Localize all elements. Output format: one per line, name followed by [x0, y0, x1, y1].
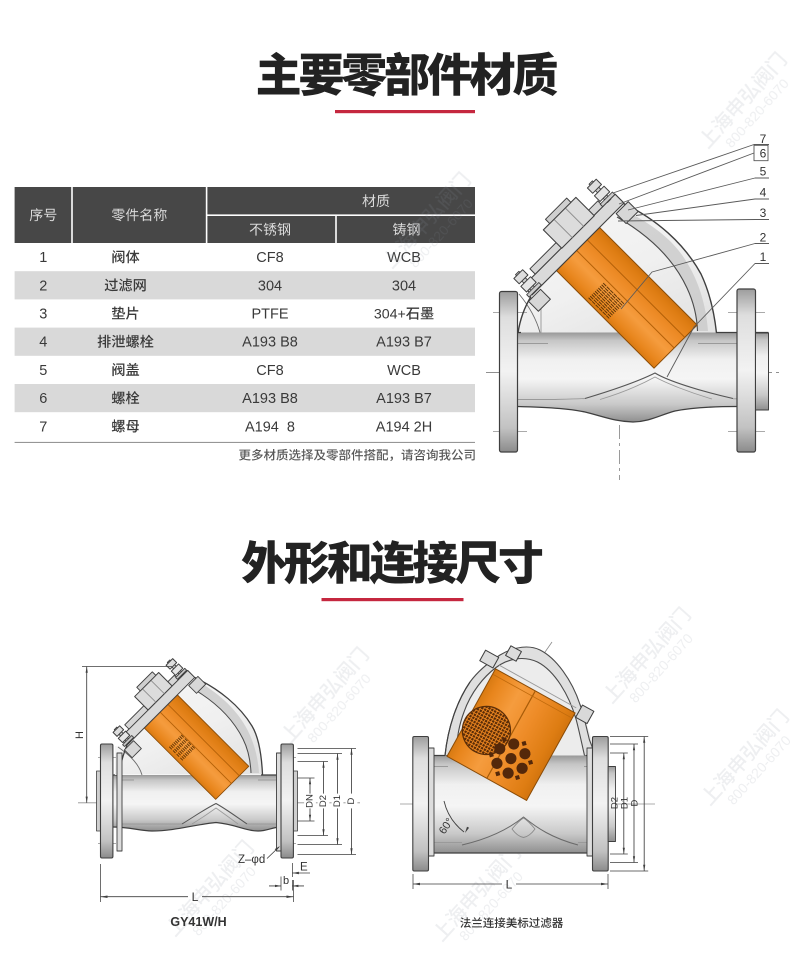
svg-text:6: 6: [39, 391, 47, 407]
svg-text:A193 B8: A193 B8: [242, 335, 298, 351]
svg-text:DN: DN: [305, 794, 316, 808]
svg-text:L: L: [192, 890, 199, 904]
svg-text:4: 4: [760, 186, 767, 200]
svg-text:D2: D2: [318, 795, 329, 807]
svg-text:7: 7: [760, 132, 767, 146]
svg-text:1: 1: [39, 250, 47, 266]
svg-text:b: b: [283, 875, 289, 887]
svg-text:L: L: [506, 878, 513, 892]
svg-text:4: 4: [390, 307, 398, 323]
svg-text:304: 304: [392, 278, 416, 294]
svg-text:Z–φd: Z–φd: [238, 854, 265, 866]
svg-text:5: 5: [760, 165, 767, 179]
svg-text:+: +: [397, 307, 405, 323]
svg-text:A193 B8: A193 B8: [242, 391, 298, 407]
svg-text:5: 5: [39, 363, 47, 379]
svg-text:3: 3: [39, 307, 47, 323]
svg-text:2: 2: [39, 278, 47, 294]
svg-text:E: E: [300, 862, 308, 874]
svg-text:D1: D1: [332, 795, 343, 807]
svg-text:304: 304: [258, 278, 282, 294]
svg-text:CF8: CF8: [256, 250, 283, 266]
svg-text:A194 2H: A194 2H: [376, 419, 432, 435]
svg-text:A193 B7: A193 B7: [376, 391, 432, 407]
svg-text:H: H: [74, 731, 86, 739]
svg-text:A193 B7: A193 B7: [376, 335, 432, 351]
svg-text:0: 0: [382, 307, 390, 323]
svg-text:CF8: CF8: [256, 363, 283, 379]
svg-text:D: D: [630, 799, 641, 806]
svg-text:PTFE: PTFE: [251, 307, 288, 323]
svg-text:2: 2: [760, 231, 767, 245]
svg-text:WCB: WCB: [387, 363, 421, 379]
svg-text:6: 6: [760, 147, 767, 161]
svg-text:1: 1: [760, 250, 767, 264]
svg-text:D: D: [346, 797, 357, 804]
svg-text:7: 7: [39, 419, 47, 435]
svg-text:GY41W/H: GY41W/H: [170, 915, 226, 929]
svg-text:A194 8: A194 8: [245, 419, 295, 435]
svg-text:3: 3: [760, 206, 767, 220]
svg-text:4: 4: [39, 335, 47, 351]
svg-text:3: 3: [374, 307, 382, 323]
